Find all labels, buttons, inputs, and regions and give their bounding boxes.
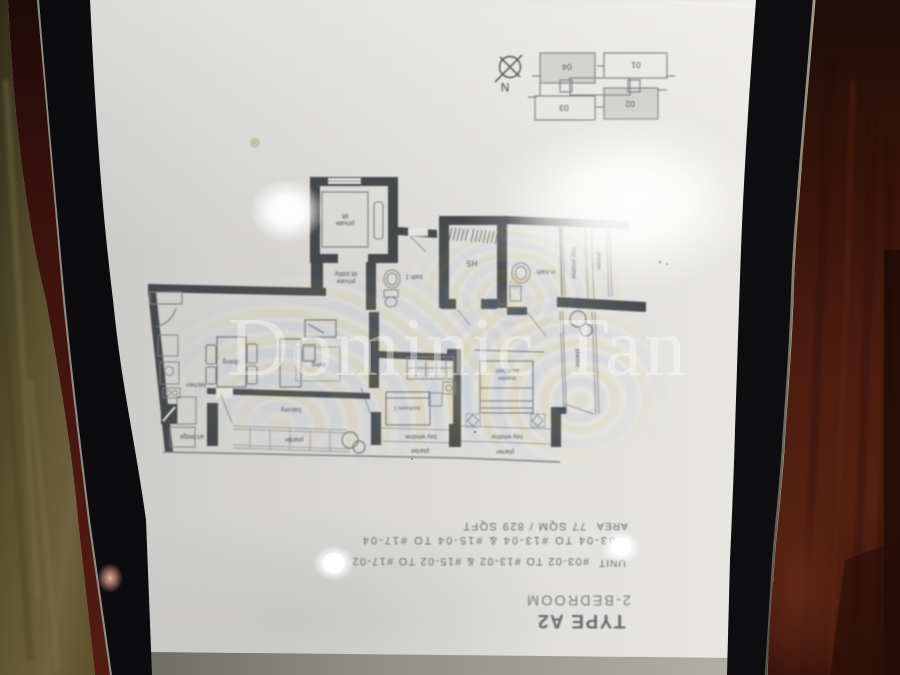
svg-text:Dominic Tan: Dominic Tan: [228, 301, 688, 394]
